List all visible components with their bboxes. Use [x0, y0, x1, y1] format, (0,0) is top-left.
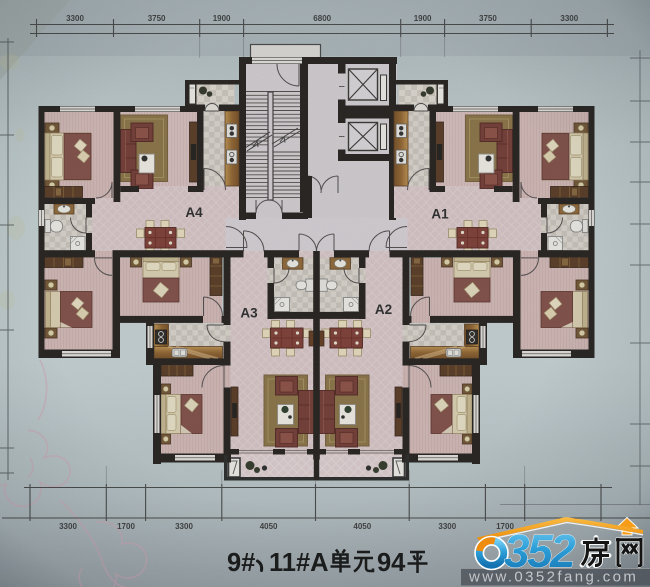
svg-text:352: 352: [504, 525, 576, 577]
